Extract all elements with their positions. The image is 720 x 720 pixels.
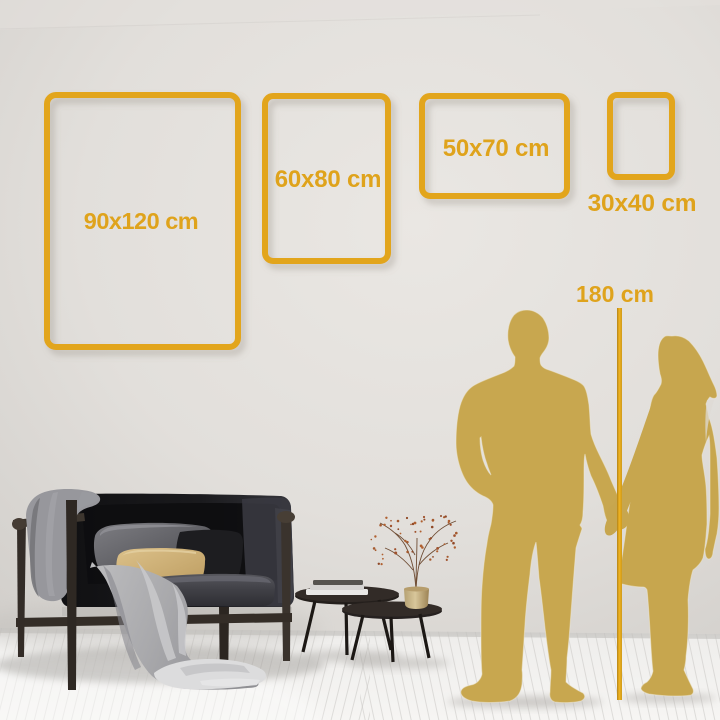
svg-text:60x80 cm: 60x80 cm	[275, 166, 382, 193]
svg-text:90x120 cm: 90x120 cm	[84, 208, 198, 234]
svg-text:50x70 cm: 50x70 cm	[443, 135, 550, 162]
svg-text:30x40 cm: 30x40 cm	[588, 190, 697, 217]
svg-text:180 cm: 180 cm	[576, 281, 654, 307]
